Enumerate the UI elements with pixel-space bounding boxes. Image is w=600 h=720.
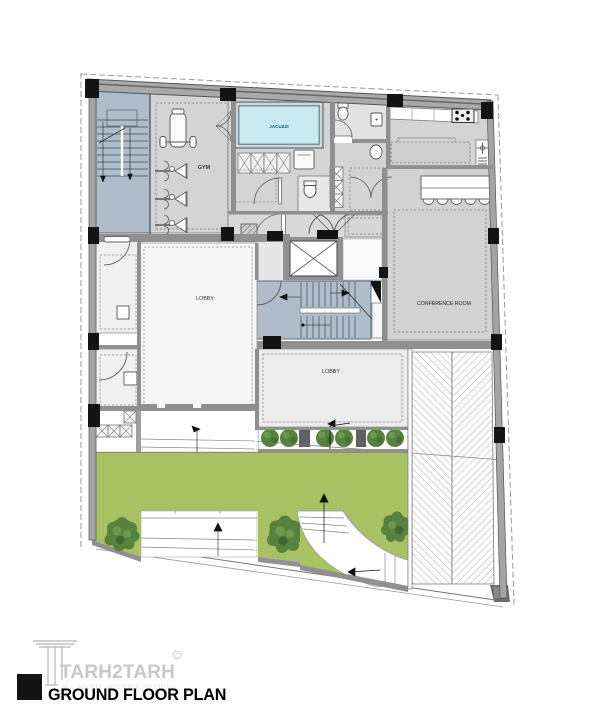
svg-text:TARH2TARH: TARH2TARH — [60, 662, 175, 683]
svg-text:C: C — [175, 654, 180, 660]
svg-text:GROUND FLOOR PLAN: GROUND FLOOR PLAN — [48, 686, 226, 704]
svg-text:LOBBY: LOBBY — [196, 296, 214, 302]
svg-text:LOBBY: LOBBY — [322, 369, 340, 375]
svg-text:JACUZZI: JACUZZI — [269, 124, 288, 129]
svg-text:CONFERENCE ROOM: CONFERENCE ROOM — [417, 301, 471, 307]
svg-text:GYM: GYM — [198, 165, 211, 171]
